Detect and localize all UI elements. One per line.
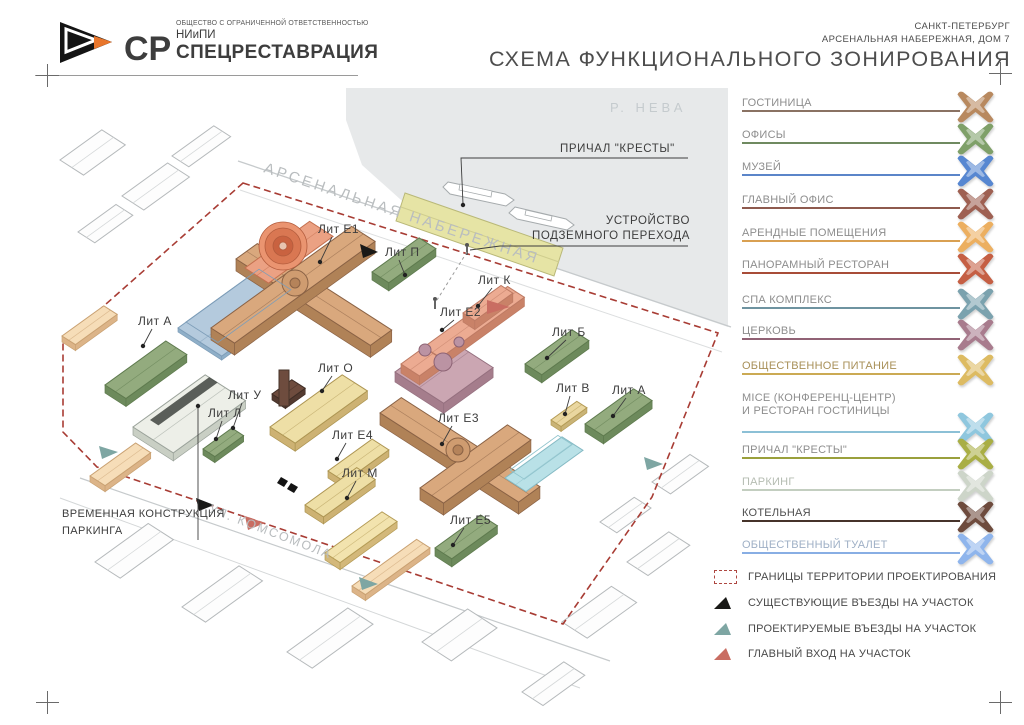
company-type: ОБЩЕСТВО С ОГРАНИЧЕННОЙ ОТВЕТСТВЕННОСТЬЮ — [176, 21, 378, 28]
legend-symbol-label: ПРОЕКТИРУЕМЫЕ ВЪЕЗДЫ НА УЧАСТОК — [748, 623, 976, 635]
legend-zone-item: ГОСТИНИЦА — [742, 97, 998, 110]
company-name: СПЕЦРЕСТАВРАЦИЯ — [176, 43, 378, 62]
entrance-marker — [644, 457, 663, 470]
leader-dot — [231, 426, 235, 430]
leader-dot — [611, 414, 615, 418]
legend-symbol-main-entrance: ГЛАВНЫЙ ВХОД НА УЧАСТОК — [714, 648, 911, 660]
legend-zone-label: MICE (КОНФЕРЕНЦ-ЦЕНТР) — [742, 392, 998, 405]
legend-underline — [742, 240, 960, 242]
building-label: Лит Е1 — [318, 222, 359, 236]
legend-zone-item: МУЗЕЙ — [742, 161, 998, 174]
church-dome — [434, 353, 452, 371]
pedestrian-icon — [433, 297, 437, 301]
leader-dot — [214, 437, 218, 441]
legend-underline — [742, 142, 960, 144]
legend-symbol-planned-entry: ПРОЕКТИРУЕМЫЕ ВЪЕЗДЫ НА УЧАСТОК — [714, 623, 976, 635]
leader-dot — [141, 344, 145, 348]
zone-block-icon — [956, 437, 995, 471]
panoramic-restaurant — [279, 242, 287, 250]
legend-symbol-label: СУЩЕСТВУЮЩИЕ ВЪЕЗДЫ НА УЧАСТОК — [748, 597, 974, 609]
legend-underline — [742, 272, 960, 274]
register-mark — [36, 64, 59, 87]
building-label: Лит О — [318, 361, 353, 375]
legend-zone-item: АРЕНДНЫЕ ПОМЕЩЕНИЯ — [742, 227, 998, 240]
triangle-icon — [714, 648, 742, 660]
legend-zone-item: ОФИСЫ — [742, 129, 998, 142]
church-dome — [419, 344, 431, 356]
boundary-icon — [714, 570, 742, 584]
temp-parking-label: ПАРКИНГА — [62, 525, 123, 537]
leader-dot — [320, 389, 324, 393]
drawing-sheet: Р. НЕВААРСЕНАЛЬНАЯ НАБЕРЕЖНАЯУЛ. КОМСОМО… — [0, 0, 1024, 725]
rotunda — [290, 278, 300, 288]
zone-block-icon — [956, 532, 995, 566]
legend-underline — [742, 431, 960, 433]
legend-zone-item: ПАРКИНГ — [742, 476, 998, 489]
building-label: Лит К — [478, 273, 511, 287]
zone-block-icon — [956, 469, 995, 503]
leader-line — [143, 329, 152, 346]
legend-underline — [742, 307, 960, 309]
zone-block-icon — [956, 500, 995, 534]
legend-symbol-label: ГЛАВНЫЙ ВХОД НА УЧАСТОК — [748, 648, 911, 660]
crosswalk-mark — [287, 483, 298, 493]
building-label: Лит А — [612, 383, 646, 397]
legend-underline — [742, 174, 960, 176]
temp-parking-label: ВРЕМЕННАЯ КОНСТРУКЦИЯ — [62, 508, 225, 520]
logo-arrow-icon — [94, 36, 112, 49]
legend-symbol-label: ГРАНИЦЫ ТЕРРИТОРИИ ПРОЕКТИРОВАНИЯ — [748, 571, 996, 583]
zone-block-icon — [956, 287, 995, 321]
leader-dot — [563, 412, 567, 416]
underpass-label: ПОДЗЕМНОГО ПЕРЕХОДА — [532, 230, 690, 242]
building-label: Лит П — [385, 245, 420, 259]
legend-underline — [742, 338, 960, 340]
building-label: Лит Е3 — [438, 411, 479, 425]
building-label: Лит А — [138, 314, 172, 328]
legend-zone-item: ЦЕРКОВЬ — [742, 325, 998, 338]
crosswalk-mark — [277, 477, 288, 487]
company-block: ОБЩЕСТВО С ОГРАНИЧЕННОЙ ОТВЕТСТВЕННОСТЬЮ… — [176, 21, 378, 62]
zone-block-icon — [956, 122, 995, 156]
legend-zone-item: СПА КОМПЛЕКС — [742, 294, 998, 307]
pier-label: ПРИЧАЛ "КРЕСТЫ" — [560, 143, 675, 155]
logo-monogram: СР — [124, 30, 171, 68]
leader-dot — [403, 273, 407, 277]
legend-underline — [742, 110, 960, 112]
triangle-icon — [714, 597, 742, 609]
underpass-label: УСТРОЙСТВО — [606, 214, 690, 227]
legend-zone-item: ГЛАВНЫЙ ОФИС — [742, 194, 998, 207]
building-label: Лит Е4 — [332, 428, 373, 442]
building-label: Лит Б — [552, 325, 586, 339]
company-logo: СР — [58, 16, 178, 68]
zone-block-icon — [956, 187, 995, 221]
leader-dot — [318, 260, 322, 264]
zone-block-icon — [956, 220, 995, 254]
leader-dot — [451, 543, 455, 547]
building-label: Лит Л — [208, 406, 242, 420]
underpass-path — [437, 252, 467, 300]
legend-symbol-existing-entry: СУЩЕСТВУЮЩИЕ ВЪЕЗДЫ НА УЧАСТОК — [714, 597, 974, 609]
leader-dot — [545, 356, 549, 360]
leader-dot — [461, 203, 465, 207]
leader-dot — [440, 442, 444, 446]
boiler-chimney — [279, 370, 289, 406]
legend-underline — [742, 457, 960, 459]
register-mark — [36, 691, 59, 714]
legend-underline — [742, 489, 960, 491]
legend: ГОСТИНИЦАОФИСЫМУЗЕЙГЛАВНЫЙ ОФИСАРЕНДНЫЕ … — [742, 0, 1020, 725]
company-short: НИиПИ — [176, 30, 378, 42]
legend-underline — [742, 520, 960, 522]
triangle-icon — [714, 623, 742, 635]
legend-zone-item: КОТЕЛЬНАЯ — [742, 507, 998, 520]
legend-underline — [742, 373, 960, 375]
legend-zone-item: MICE (КОНФЕРЕНЦ-ЦЕНТР)И РЕСТОРАН ГОСТИНИ… — [742, 392, 998, 418]
legend-zone-item: ПРИЧАЛ "КРЕСТЫ" — [742, 444, 998, 457]
zone-block-icon — [956, 252, 995, 286]
rotunda — [453, 445, 463, 455]
church-dome — [454, 337, 464, 347]
zone-block-icon — [956, 318, 995, 352]
building-label: Лит Е2 — [440, 305, 481, 319]
zone-block-icon — [956, 154, 995, 188]
legend-symbol-boundary: ГРАНИЦЫ ТЕРРИТОРИИ ПРОЕКТИРОВАНИЯ — [714, 570, 996, 584]
leader-line — [337, 443, 346, 459]
header-divider — [35, 75, 358, 76]
building-label: Лит У — [228, 388, 262, 402]
legend-underline — [742, 207, 960, 209]
legend-zone-item: ПАНОРАМНЫЙ РЕСТОРАН — [742, 259, 998, 272]
building-label: Лит В — [556, 381, 590, 395]
legend-zone-item: ОБЩЕСТВЕННОЕ ПИТАНИЕ — [742, 360, 998, 373]
building-label: Лит М — [342, 466, 378, 480]
leader-dot — [196, 404, 200, 408]
legend-underline — [742, 552, 960, 554]
legend-zone-item: ОБЩЕСТВЕННЫЙ ТУАЛЕТ — [742, 539, 998, 552]
leader-dot — [335, 457, 339, 461]
leader-dot — [345, 496, 349, 500]
building-label: Лит Е5 — [450, 513, 491, 527]
zone-block-icon — [956, 353, 995, 387]
zone-block-icon — [956, 90, 995, 124]
entrance-marker — [99, 446, 118, 459]
leader-dot — [440, 328, 444, 332]
river-label: Р. НЕВА — [610, 100, 686, 115]
